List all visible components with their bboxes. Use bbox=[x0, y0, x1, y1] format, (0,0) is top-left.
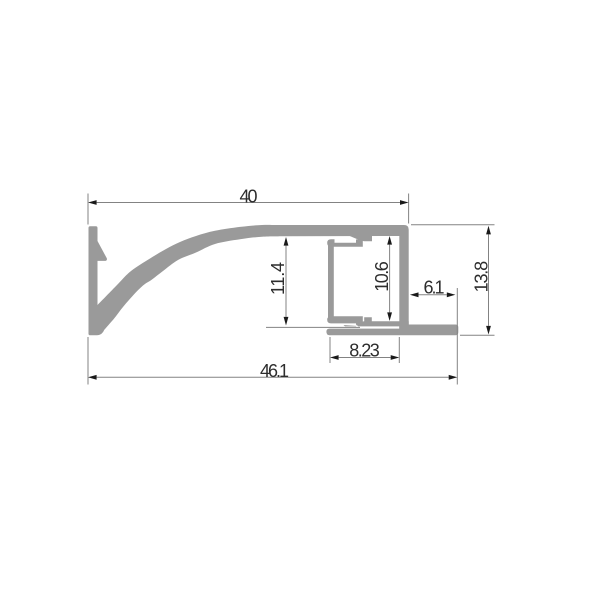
svg-text:6.1: 6.1 bbox=[424, 278, 445, 298]
svg-text:11.4: 11.4 bbox=[268, 262, 288, 295]
svg-text:8.23: 8.23 bbox=[349, 340, 380, 360]
svg-text:10.6: 10.6 bbox=[372, 261, 392, 292]
svg-text:13.8: 13.8 bbox=[471, 261, 491, 293]
svg-text:40: 40 bbox=[240, 186, 258, 206]
svg-text:46.1: 46.1 bbox=[260, 361, 289, 381]
